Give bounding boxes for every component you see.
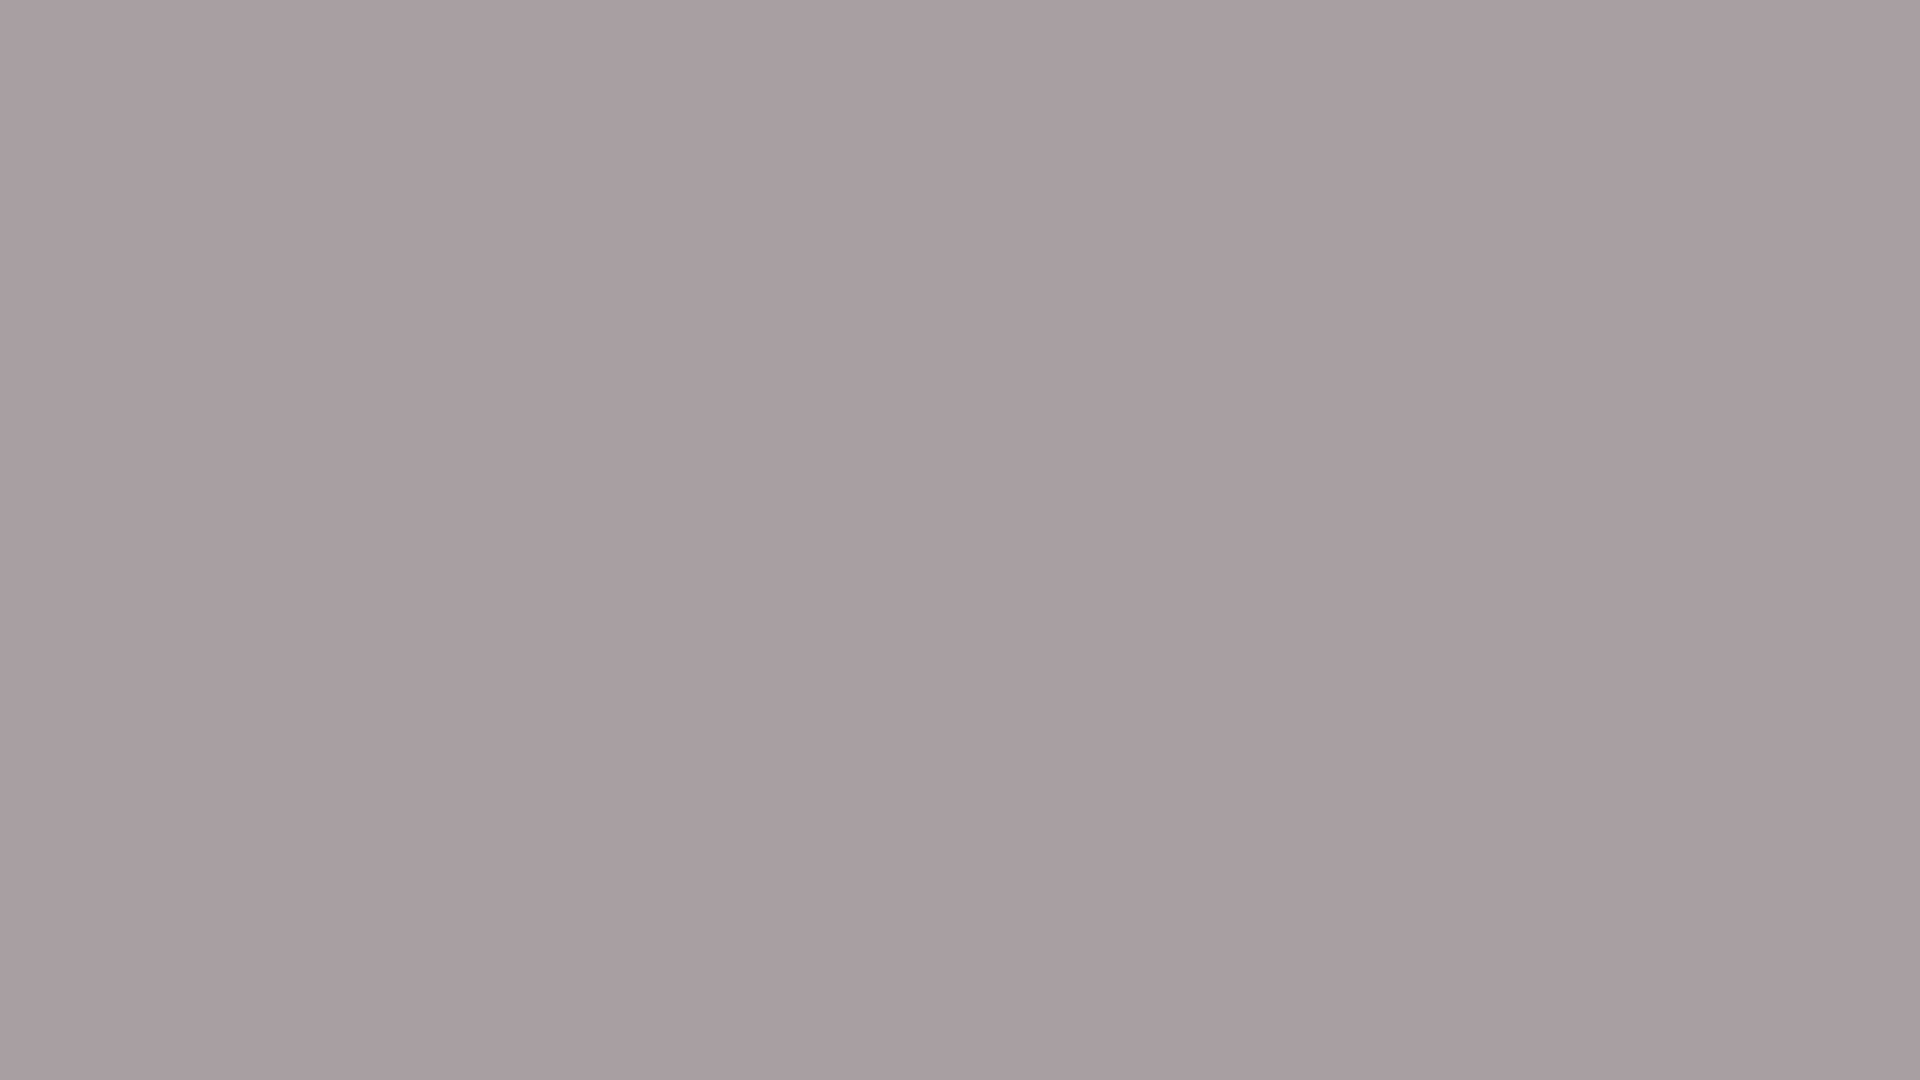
villa-development-render: [0, 0, 1920, 1080]
scene-svg: [0, 0, 1920, 1080]
